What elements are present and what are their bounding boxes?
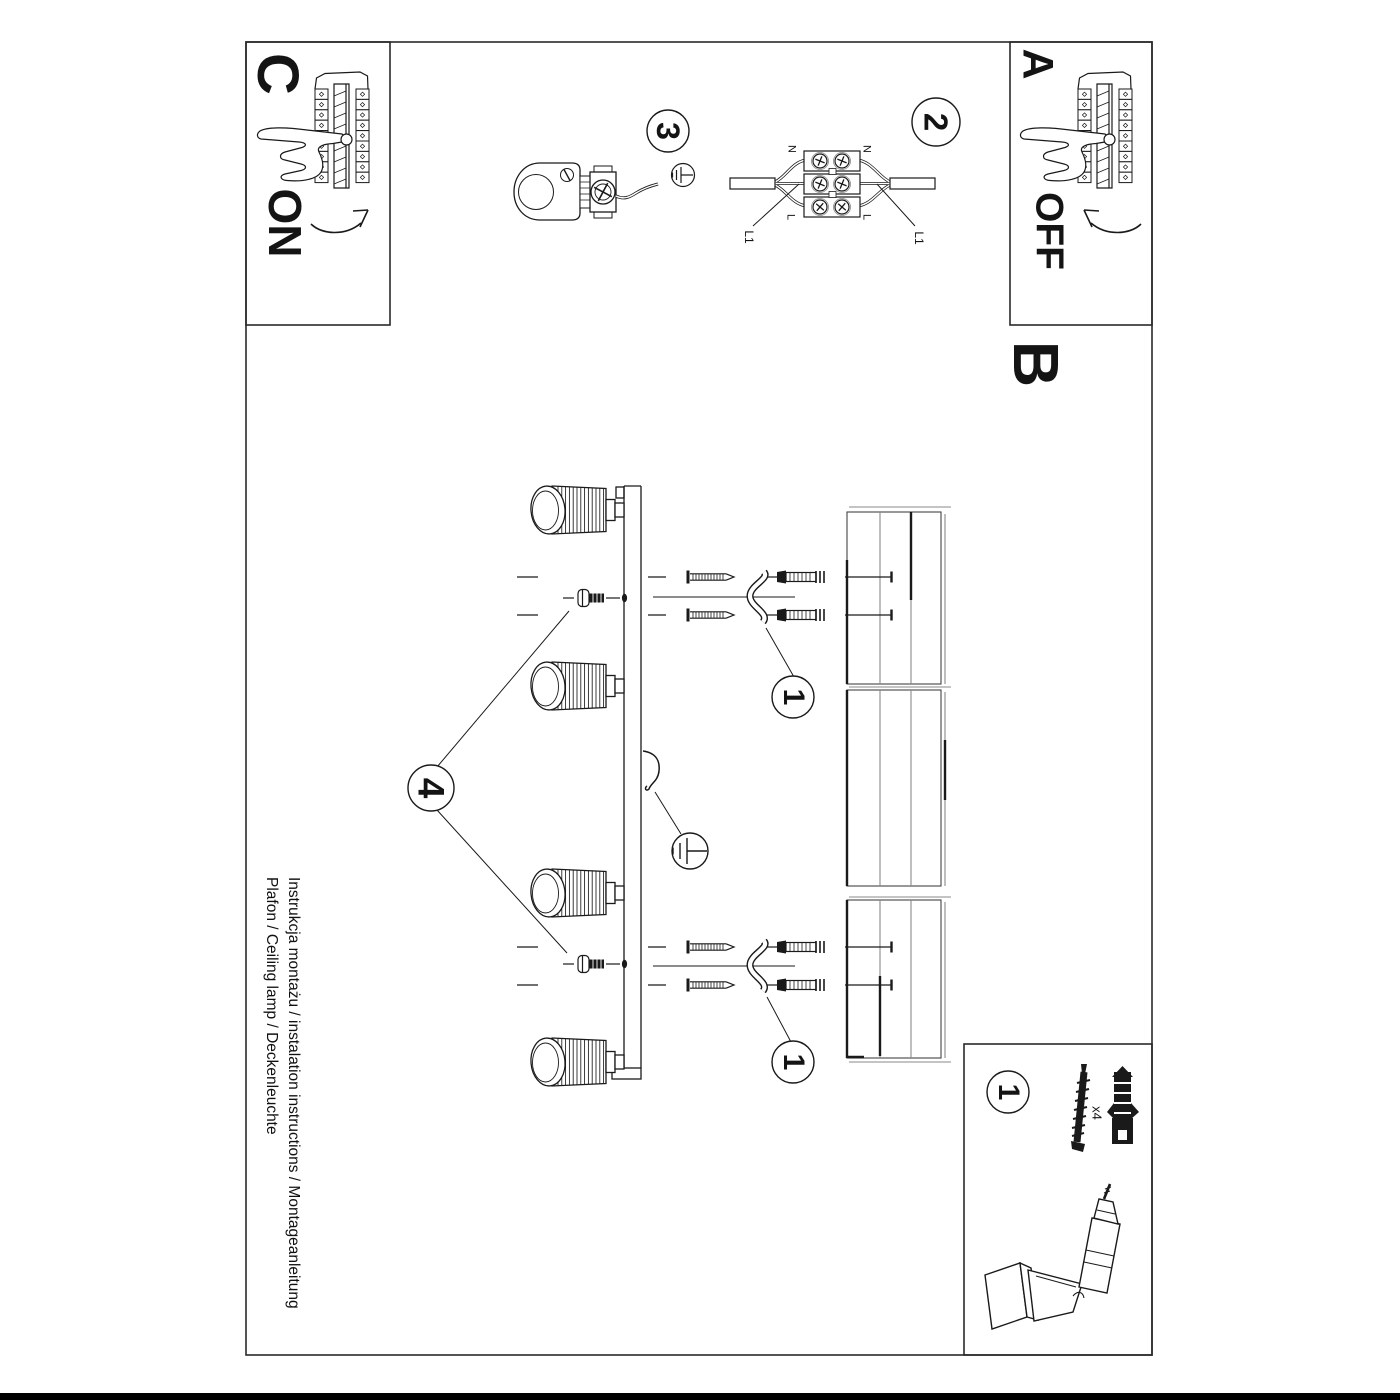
step-4-number: 4 <box>413 778 450 799</box>
wire-label-l-left: L <box>785 214 796 220</box>
section-a-label: A <box>1016 48 1059 79</box>
screw-and-anchor-row <box>517 979 892 992</box>
ground-symbol-icon <box>672 164 695 187</box>
scan-edge-bar <box>0 1393 1400 1400</box>
spot-lamp <box>529 868 624 919</box>
anchor-quantity-label: x4 <box>1091 1106 1104 1120</box>
spot-lamp <box>529 1037 624 1088</box>
footer-line-2: Plafon / Ceiling lamp / Deckenleuchte <box>260 877 282 1353</box>
ceiling-panels <box>847 507 951 1062</box>
section-c-label: C <box>248 53 306 95</box>
instruction-drawing <box>0 0 1400 1400</box>
wire-label-l1-right: L1 <box>913 231 925 244</box>
breaker-panel-icon <box>1020 72 1132 188</box>
screw-and-anchor-row <box>517 941 892 954</box>
page-frame <box>246 42 1152 1355</box>
instruction-sheet: C ON A OFF B 3 2 4 1 1 1 N N L L L1 L1 x… <box>0 0 1400 1400</box>
spot-lamp <box>529 485 624 536</box>
drill-icon <box>985 1184 1120 1329</box>
rotate-off-arrow-icon <box>1084 210 1141 233</box>
earth-wire <box>643 751 659 790</box>
ground-symbol-icon <box>672 833 708 869</box>
lamp-assembly-illustration <box>437 485 951 1088</box>
wire-label-l-right: L <box>861 214 872 220</box>
step3-holder-illustration <box>514 163 695 220</box>
footer-line-1: Instrukcja montażu / instalation instruc… <box>282 877 304 1353</box>
step2-wiring-illustration <box>730 151 935 226</box>
thumb-screw-icon <box>563 956 627 973</box>
wire-label-n-left: N <box>786 145 797 153</box>
section-b-label: B <box>1004 341 1068 387</box>
cable <box>890 178 935 189</box>
screw-and-anchor-row <box>517 609 892 622</box>
step-1-number: 1 <box>778 689 808 706</box>
thumb-screw-icon <box>563 590 627 607</box>
switch-off-label: OFF <box>1030 192 1069 270</box>
wire-label-n-right: N <box>861 145 872 153</box>
switch-on-label: ON <box>262 189 308 258</box>
step-3-number: 3 <box>652 122 684 140</box>
wall-plug-icon <box>1107 1066 1139 1144</box>
cable <box>730 178 775 189</box>
step-2-number: 2 <box>920 113 953 131</box>
step-1-number: 1 <box>778 1054 808 1071</box>
l1-leader-right <box>877 184 915 226</box>
screw-and-anchor-row <box>517 571 892 584</box>
screw-icon <box>1071 1064 1090 1152</box>
step-1-number: 1 <box>993 1084 1023 1101</box>
footer-title: Instrukcja montażu / instalation instruc… <box>260 877 304 1353</box>
mounting-bar <box>612 486 641 1079</box>
rotate-on-arrow-icon <box>311 210 368 233</box>
spot-lamp <box>529 661 624 712</box>
terminal-block <box>804 151 860 217</box>
wire-label-l1-left: L1 <box>743 230 755 243</box>
